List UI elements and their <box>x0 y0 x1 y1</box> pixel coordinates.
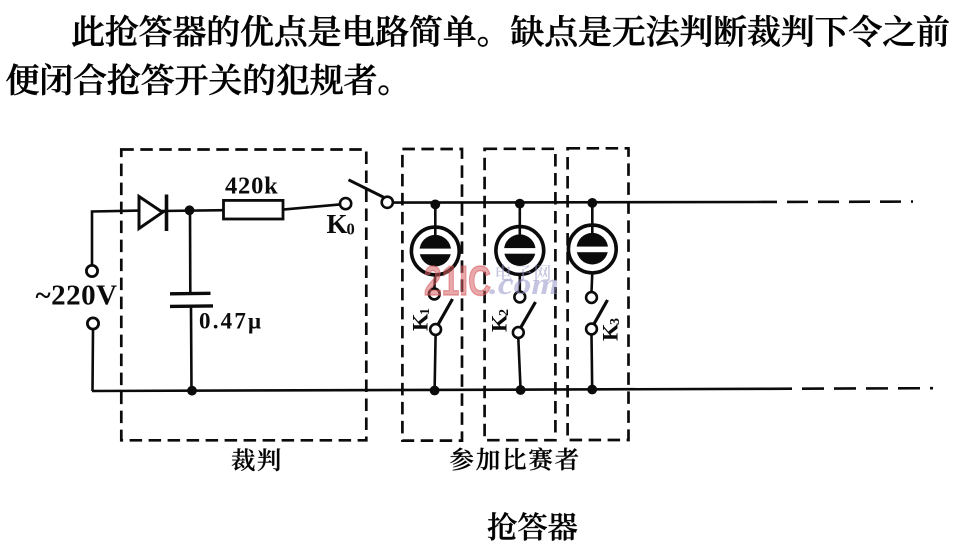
svg-text:0.47μ: 0.47μ <box>199 309 263 334</box>
svg-text:3: 3 <box>608 318 623 325</box>
svg-text:21IC: 21IC <box>424 257 491 304</box>
svg-text:0: 0 <box>347 220 355 239</box>
svg-text:1: 1 <box>418 308 433 315</box>
svg-text:420k: 420k <box>225 173 279 200</box>
svg-text:~220V: ~220V <box>36 280 118 312</box>
svg-text:K: K <box>327 209 348 239</box>
svg-text:2: 2 <box>497 309 512 316</box>
